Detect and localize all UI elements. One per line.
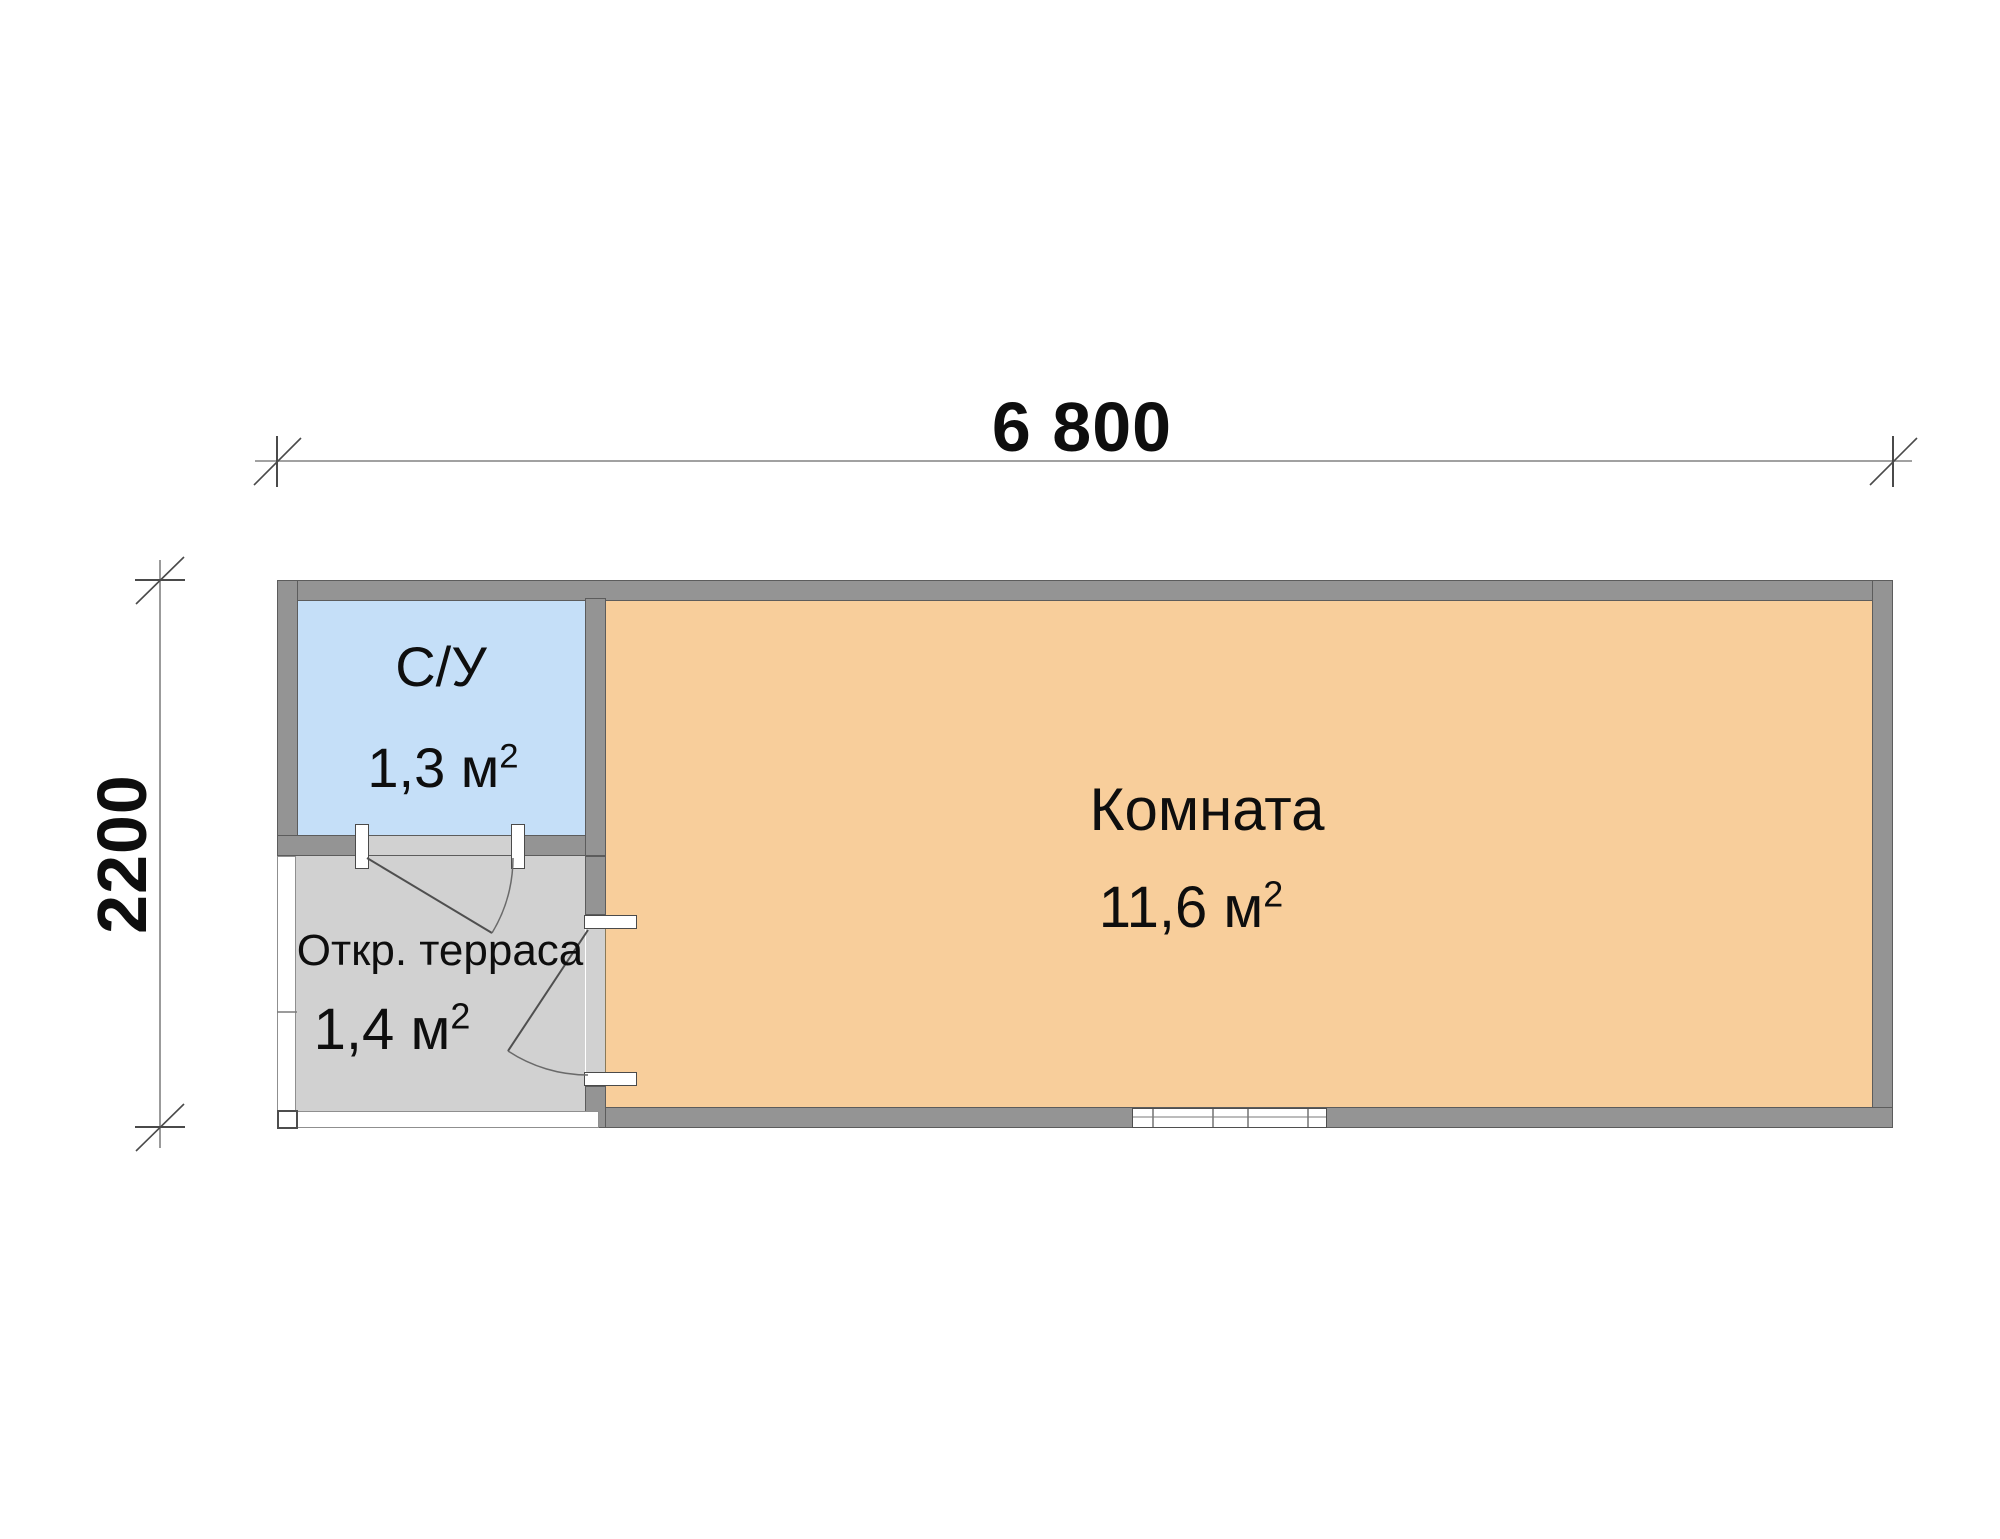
dimension-slash-top-left <box>254 438 301 485</box>
dimension-height-label: 2200 <box>87 774 157 934</box>
wall-su-room-divider <box>585 598 606 856</box>
terrace-open-side-bottom <box>277 1111 599 1128</box>
terrace-area-label: 1,4 м2 <box>314 1001 471 1059</box>
wall-right <box>1872 580 1893 1128</box>
dimension-slash-top-right <box>1870 438 1917 485</box>
su-door-opening <box>369 836 511 855</box>
su-room-area-label: 1,3 м2 <box>367 740 518 796</box>
terrace-name: Откр. терраса <box>297 929 584 973</box>
dimension-height-value: 2200 <box>83 774 161 934</box>
terrace-door-jamb-bottom <box>584 1072 637 1086</box>
su-room-name: С/У <box>395 639 487 695</box>
terrace-door-jamb-top <box>584 915 637 929</box>
su-door-jamb-right <box>511 824 525 869</box>
terrace-door-opening <box>586 929 605 1072</box>
terrace-corner-post <box>277 1110 298 1129</box>
wall-top <box>277 580 1893 601</box>
terrace-open-side-left <box>277 856 296 1128</box>
dimension-width-value: 6 800 <box>992 388 1172 466</box>
dimension-slash-left-top <box>136 557 184 604</box>
main-room-area-label: 11,6 м2 <box>1099 879 1284 937</box>
wall-terrace-room-upper <box>585 856 606 915</box>
window <box>1132 1108 1327 1128</box>
floor-plan: 6 800 2200 С/У 1,3 м2 Откр. терраса 1,4 … <box>0 0 2000 1539</box>
wall-left-su <box>277 580 298 856</box>
dimension-width-label: 6 800 <box>992 392 1172 462</box>
terrace-area <box>295 856 585 1112</box>
su-door-jamb-left <box>355 824 369 869</box>
main-room-area <box>605 600 1873 1108</box>
dimension-slash-left-bottom <box>136 1104 184 1151</box>
main-room-name: Комната <box>1090 780 1325 840</box>
